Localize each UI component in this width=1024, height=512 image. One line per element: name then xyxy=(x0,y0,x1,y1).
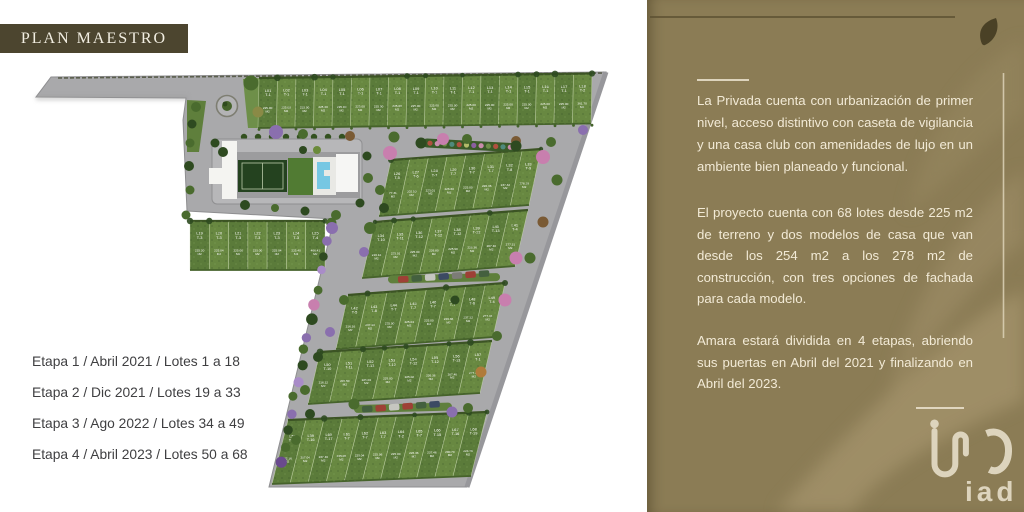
svg-text:iad: iad xyxy=(965,476,1017,507)
